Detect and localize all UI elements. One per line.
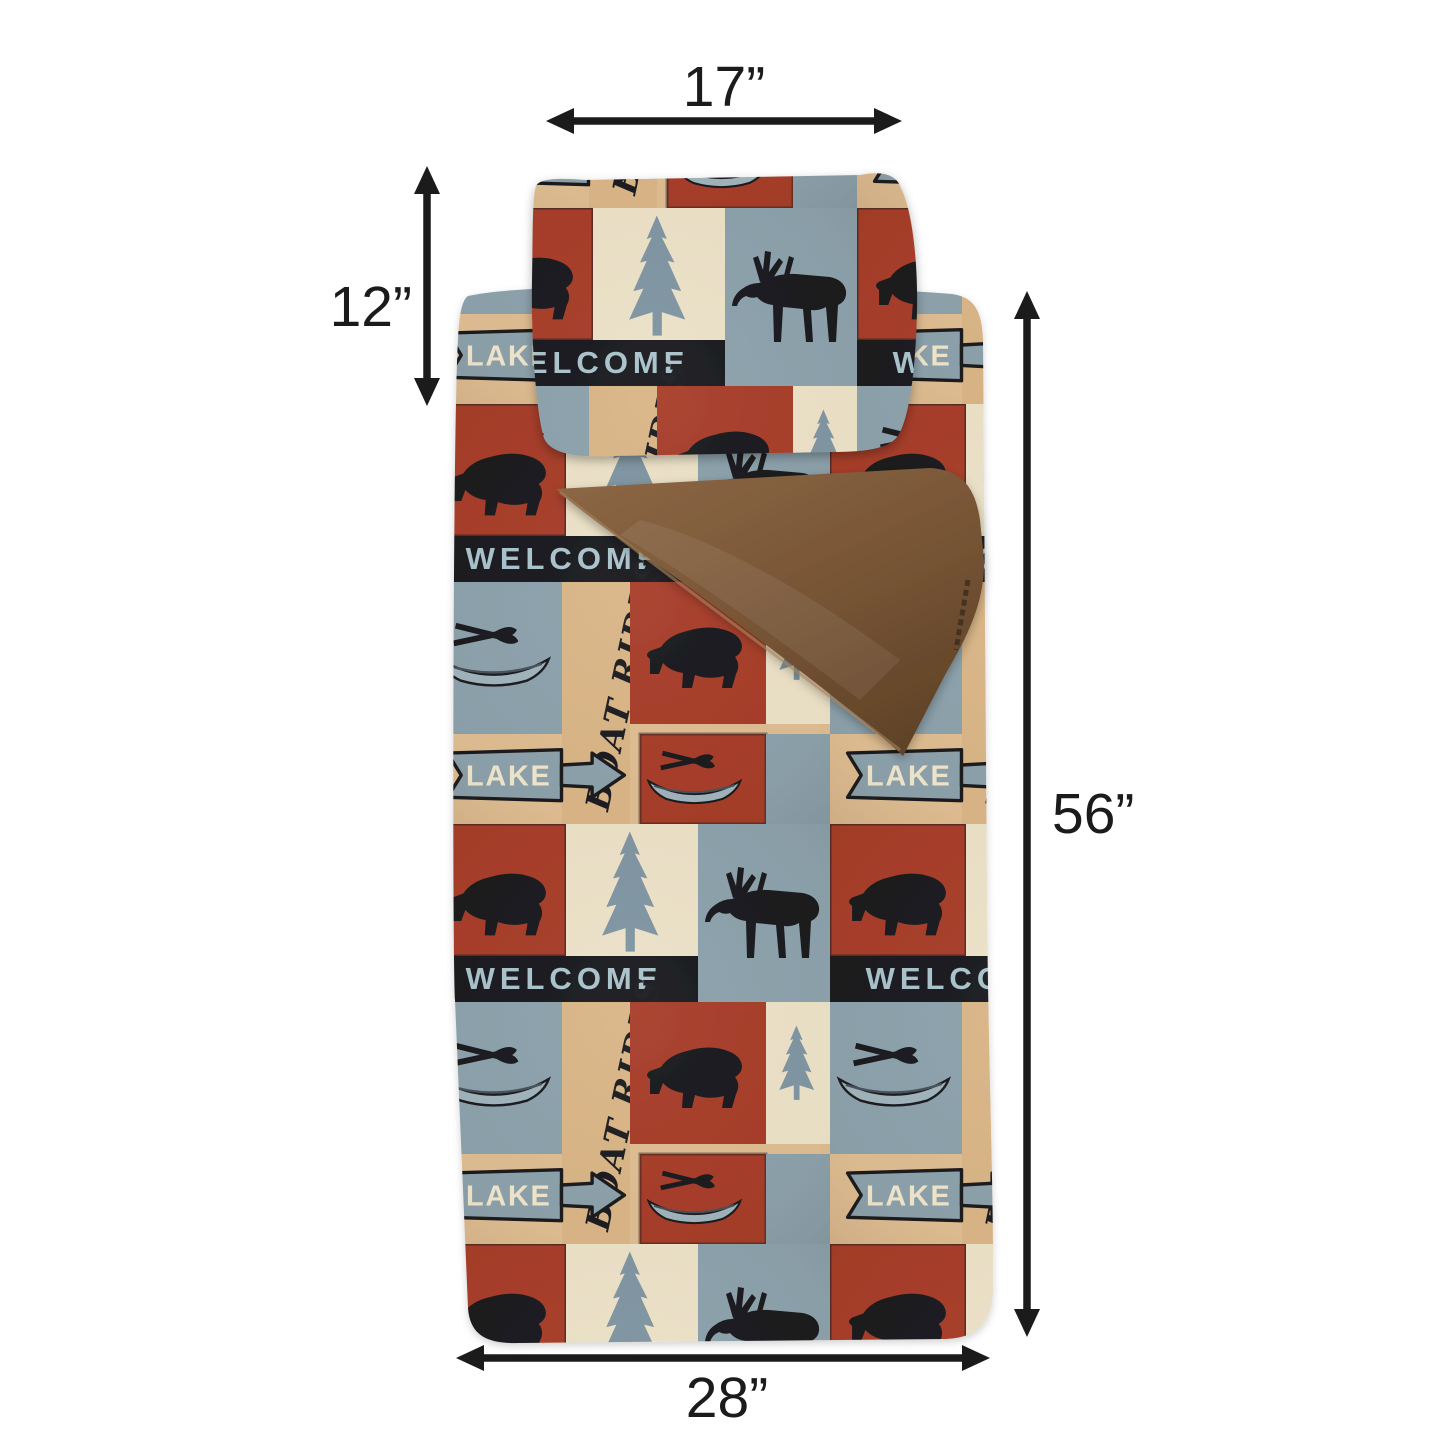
dimension-label-bag-length: 56” [1052,782,1134,846]
dimension-label-bag-width: 28” [686,1366,768,1430]
product-dimension-image: LAKE WELCOME BOAT RIDES [0,0,1445,1445]
dimension-arrow-bag-length: 56” [1014,291,1134,1337]
arrowhead-left [456,1345,484,1371]
arrowhead-right [962,1345,990,1371]
arrowhead-down [414,378,440,406]
arrowhead-up [1014,291,1040,319]
dimension-label-pillow-width: 17” [683,55,765,119]
pillow [532,173,917,456]
dimension-arrow-bag-width: 28” [456,1345,990,1430]
dimension-label-pillow-height: 12” [330,275,412,339]
dimension-arrow-pillow-height: 12” [330,166,440,406]
arrowhead-left [546,108,574,134]
arrowhead-down [1014,1309,1040,1337]
arrowhead-up [414,166,440,194]
dimension-arrow-pillow-width: 17” [546,55,902,134]
product-photo: LAKE WELCOME BOAT RIDES [0,0,1445,1445]
arrowhead-right [874,108,902,134]
